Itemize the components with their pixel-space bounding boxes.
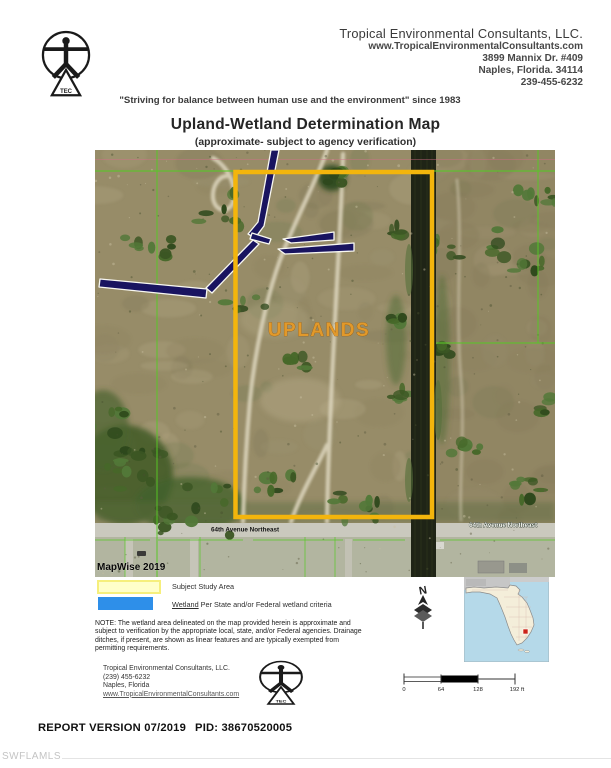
report-page: TEC Tropical Environmental Consultants, … [0,0,611,768]
watermark-rule [62,758,611,759]
report-version-line: REPORT VERSION 07/2019PID: 38670520005 [38,722,301,734]
footer-logo-icon: TEC [252,655,310,707]
florida-locator-map [464,577,549,662]
report-pid: PID: 38670520005 [195,722,292,734]
company-header-block: Tropical Environmental Consultants, LLC.… [339,26,583,89]
footer-contact-block: Tropical Environmental Consultants, LLC.… [103,665,239,699]
building [478,561,504,573]
page-subtitle: (approximate- subject to agency verifica… [0,137,611,148]
legend-label-wetland: Wetland Per State and/or Federal wetland… [172,600,332,609]
report-version: REPORT VERSION 07/2019 [38,722,186,734]
site-location-marker [523,629,528,634]
contact-city: Naples, Florida [103,682,239,691]
company-address1: 3899 Mannix Dr. #409 [339,53,583,65]
building [509,563,527,573]
north-arrow-icon: N [406,583,440,631]
legend-swatch-study-area [97,580,161,594]
road-label-right: 64th Avenue Northeast [469,522,538,529]
scale-tick-128: 128 [473,687,483,693]
page-title: Upland-Wetland Determination Map [0,116,611,134]
legend-wetland-rest: Per State and/or Federal wetland criteri… [199,600,332,609]
company-name: Tropical Environmental Consultants, LLC. [339,26,583,41]
company-logo-icon: TEC [34,22,98,100]
contact-website-link: www.TropicalEnvironmentalConsultants.com [103,691,239,700]
aerial-map: UPLANDS 64th Avenue Northeast 64th Avenu… [95,150,555,577]
scale-tick-64: 64 [438,687,445,693]
contact-phone: (239) 455-6232 [103,674,239,683]
map-credit: MapWise 2019 [97,562,166,573]
uplands-label: UPLANDS [268,320,370,341]
note-line: ditches, if present, are shown as linear… [95,637,395,645]
scale-tick-192: 192 ft [510,687,525,693]
legend-label-study-area: Subject Study Area [172,582,234,591]
contact-company: Tropical Environmental Consultants, LLC. [103,665,239,674]
legend-swatch-wetland [98,597,153,610]
note-line: subject to verification by the appropria… [95,628,395,636]
logo-acronym: TEC [276,699,287,704]
note-line: permitting requirements. [95,645,395,653]
watermark-text: SWFLAMLS [2,751,61,762]
note-line: NOTE: The wetland area delineated on the… [95,620,395,628]
note-block: NOTE: The wetland area delineated on the… [95,620,395,653]
scale-tick-0: 0 [402,687,405,693]
building [435,542,444,549]
vehicle [137,551,146,556]
company-tagline: "Striving for balance between human use … [0,95,580,106]
scale-bar: 0 64 128 192 ft [398,670,530,696]
company-website: www.TropicalEnvironmentalConsultants.com [339,41,583,53]
road-label-left: 64th Avenue Northeast [211,527,280,534]
legend-wetland-word: Wetland [172,600,199,609]
company-phone: 239-455-6232 [339,77,583,89]
company-address2: Naples, Florida. 34114 [339,65,583,77]
